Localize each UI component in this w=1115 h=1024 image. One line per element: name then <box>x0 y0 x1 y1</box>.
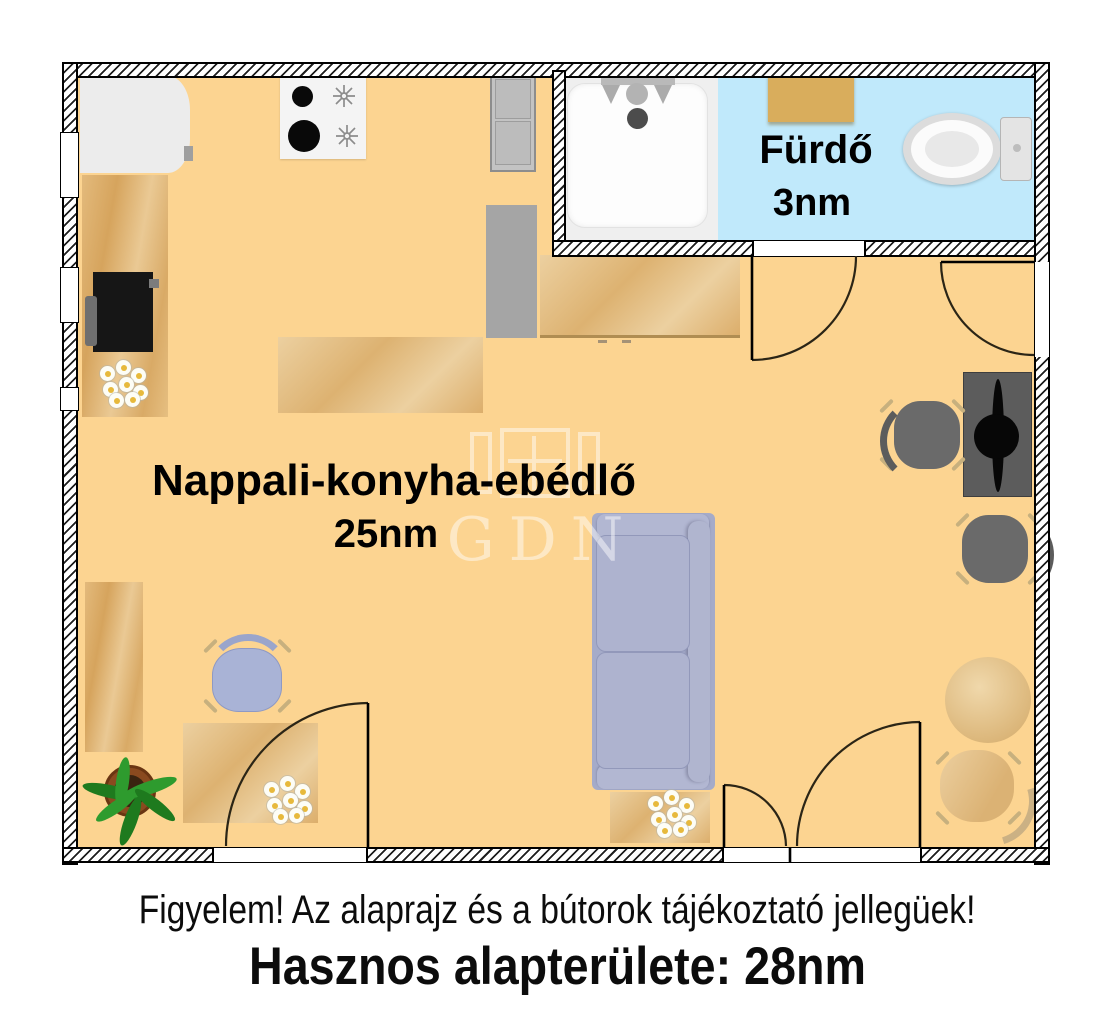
flowers-icon <box>646 790 698 838</box>
tall-cabinet-icon <box>486 205 537 338</box>
washbasin-cabinet-icon <box>768 73 854 122</box>
window-icon <box>60 387 79 411</box>
disclaimer-text: Figyelem! Az alaprajz és a bútorok tájék… <box>0 888 1115 933</box>
toilet-button-icon <box>1013 144 1021 152</box>
counter-mark <box>622 340 631 343</box>
tv-appliance-knob-icon <box>149 279 159 288</box>
wall-right <box>1034 62 1050 865</box>
fridge-drawer-line <box>495 121 531 165</box>
door-opening <box>1034 262 1050 357</box>
total-area-text: Hasznos alapterülete: 28nm <box>0 936 1115 997</box>
shower-drain-icon <box>627 108 648 129</box>
shower-knob-right-icon <box>654 85 672 104</box>
door-opening <box>754 240 864 257</box>
office-chair-icon <box>878 392 970 478</box>
coffee-table-icon <box>278 337 483 413</box>
wall-bottom <box>920 847 1050 863</box>
office-chair-icon <box>952 506 1044 592</box>
fridge-door-line <box>495 79 531 119</box>
watermark-text: GDN <box>432 510 652 570</box>
plant-icon <box>80 755 180 847</box>
monitor-base-icon <box>974 414 1019 459</box>
tv-appliance-icon <box>93 272 153 352</box>
wall-bathroom-bottom <box>864 240 1036 257</box>
wooden-chair-icon <box>928 742 1028 838</box>
kitchen-counter-top-icon <box>540 255 740 338</box>
window-icon <box>60 132 79 198</box>
door-opening <box>214 847 366 863</box>
counter-mark <box>598 340 607 343</box>
shower-mixer-icon <box>626 83 648 105</box>
wardrobe-handle-icon <box>184 146 193 161</box>
stove-burner-small-icon <box>292 86 313 107</box>
shower-knob-left-icon <box>602 85 620 104</box>
round-table-icon <box>945 657 1031 743</box>
living-room-label: Nappali-konyha-ebédlő <box>152 456 636 506</box>
cabinet-left-icon <box>85 582 143 752</box>
wardrobe-icon <box>80 76 190 173</box>
living-room-area: 25nm <box>334 512 439 557</box>
floor-plan-image: GDN <box>0 0 1115 1024</box>
stove-burner-large-icon <box>288 120 320 152</box>
wall-bottom <box>62 847 214 863</box>
wall-bottom <box>366 847 724 863</box>
flowers-icon <box>262 776 314 824</box>
wall-bathroom-bottom <box>552 240 754 257</box>
toilet-bowl-inner-icon <box>925 131 979 167</box>
wall-bathroom-left <box>552 70 566 250</box>
window-icon <box>60 267 79 323</box>
flowers-icon <box>98 360 150 408</box>
tv-appliance-mount-icon <box>85 296 97 346</box>
chair-icon <box>200 630 296 722</box>
door-opening <box>724 847 920 863</box>
bathroom-label: Fürdő <box>759 128 872 173</box>
bathroom-area: 3nm <box>773 182 851 225</box>
